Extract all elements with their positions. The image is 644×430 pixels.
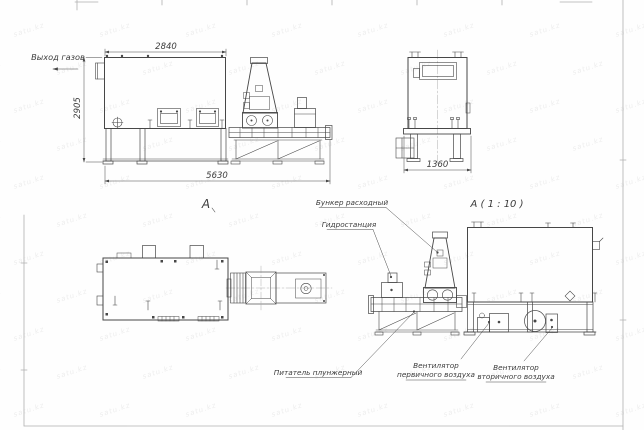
callout-fan-primary-line2: первичного воздуха	[397, 370, 475, 379]
lifting-lugs	[410, 52, 464, 57]
frame-studs	[472, 291, 597, 302]
detail-feeder-truss	[375, 312, 459, 336]
burner-box	[396, 138, 414, 158]
callout-hydro-label: Гидростанция	[322, 220, 377, 229]
flange-studs	[408, 118, 460, 129]
aux-structure	[295, 98, 316, 128]
inspection-hatches	[158, 109, 219, 127]
dim-5630-text: 5630	[206, 171, 228, 181]
gas-outlet-note: Выход газов	[31, 52, 85, 69]
anchor-studs	[148, 120, 224, 128]
fan-secondary	[525, 311, 558, 333]
view-letter-a-text: А	[201, 197, 210, 211]
end-legs	[407, 134, 463, 162]
round-port	[112, 117, 123, 128]
detail-tower-base	[424, 288, 457, 303]
top-hatch	[414, 63, 457, 80]
gas-outlet-flange	[96, 63, 105, 79]
view-detail-side: Бункер расходный Гидростанция Питатель п…	[274, 198, 603, 382]
callout-feeder: Питатель плунжерный	[274, 310, 415, 377]
technical-drawing: 2840 2905 5630 Выход газов	[0, 0, 644, 430]
boiler-body	[105, 58, 226, 129]
drawing-sheet: satu.kzsatu.kzsatu.kzsatu.kzsatu.kzsatu.…	[0, 0, 644, 430]
detail-body	[468, 228, 593, 303]
callout-fan-secondary-line2: вторичного воздуха	[477, 372, 554, 381]
plan-inner-marks	[113, 260, 222, 310]
dim-1360-text: 1360	[427, 160, 449, 170]
dim-2840-text: 2840	[155, 42, 177, 52]
dim-2840: 2840	[105, 42, 226, 56]
view-front-elevation: 2840 2905 5630 Выход газов	[31, 42, 332, 212]
view-plan	[97, 246, 332, 322]
base-flange	[404, 129, 471, 135]
plan-left-flanges	[97, 264, 103, 305]
detail-lugs	[472, 222, 576, 228]
callout-feeder-label: Питатель плунжерный	[274, 368, 363, 377]
support-legs	[103, 129, 228, 165]
plan-body	[103, 258, 228, 320]
view-letter-a: А	[201, 197, 215, 212]
callout-fan-primary-line1: Вентилятор	[413, 361, 459, 370]
furnace-tower	[243, 58, 277, 114]
dim-5630: 5630	[105, 140, 330, 184]
callout-fan-secondary-line1: Вентилятор	[493, 363, 539, 372]
detail-feeder	[369, 296, 463, 314]
conveyor-truss	[231, 140, 324, 164]
fan-primary	[478, 313, 509, 332]
detail-tower	[425, 232, 456, 288]
dim-2905-text: 2905	[73, 97, 83, 119]
gas-outlet-label: Выход газов	[31, 52, 85, 62]
view-end: 1360	[396, 50, 471, 173]
detail-view-title: А ( 1 : 10 )	[470, 199, 524, 210]
right-bracket	[593, 238, 604, 250]
rivet-dots	[106, 55, 223, 57]
plan-bolts	[106, 260, 224, 319]
callout-bunker-label: Бункер расходный	[316, 198, 388, 207]
callout-fan-secondary: Вентилятор вторичного воздуха	[477, 326, 554, 382]
callout-hydro: Гидростанция	[322, 220, 392, 278]
tower-base-box	[243, 113, 278, 129]
plan-top-tabs	[117, 246, 204, 259]
